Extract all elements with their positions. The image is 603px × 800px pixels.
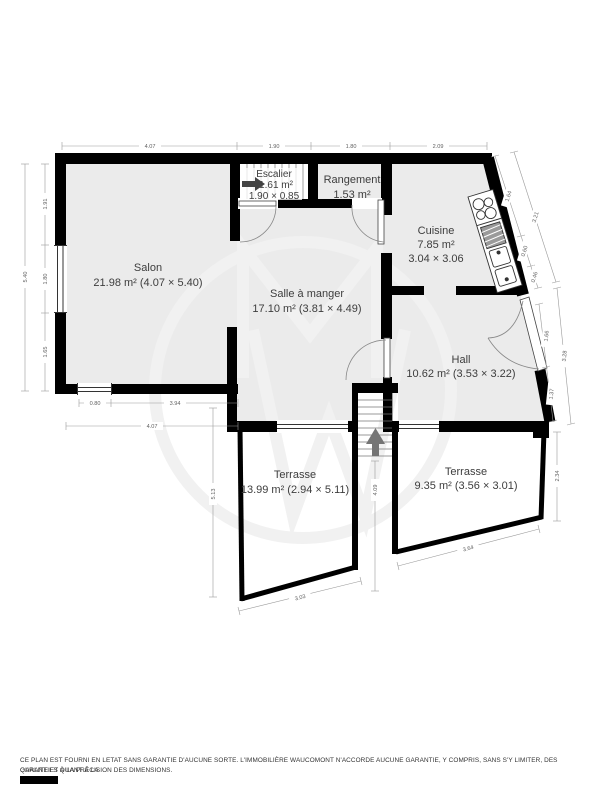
cuisine-label: Cuisine	[418, 225, 455, 237]
dim-top-escalier: 1.90	[269, 144, 280, 150]
cuisine-size: 3.04 × 3.06	[408, 253, 463, 265]
floor-plan-page: 4.07 1.90 1.80 2.09 1.91 1.80 1.65 5.40 …	[0, 0, 603, 800]
salon-left-window	[54, 245, 67, 313]
terrace-left-label: Terrasse	[274, 469, 316, 481]
dim-stairs-len: 4.09	[373, 485, 379, 496]
dim-hall-seg2: 1.37	[549, 388, 556, 399]
dim-top-cuisine: 2.09	[433, 144, 444, 150]
dining-label: Salle à manger	[270, 288, 344, 300]
dim-hall-total: 3.28	[562, 350, 569, 361]
hall-terrace-window	[399, 420, 439, 433]
dim-top-rangement: 1.80	[346, 144, 357, 150]
escalier-label: Escalier	[256, 169, 292, 180]
salon-bottom-window	[77, 383, 112, 395]
dim-left-total: 5.40	[23, 272, 29, 283]
terrace-left-area: 13.99 m² (2.94 × 5.11)	[241, 484, 349, 496]
dim-salon-window: 0.80	[90, 401, 101, 407]
dining-sliding-door	[274, 420, 351, 433]
rangement-label: Rangement	[324, 174, 381, 186]
dim-left-seg1: 1.91	[43, 199, 49, 210]
dim-hall-seg1: 1.66	[544, 330, 551, 341]
dim-top-salon: 4.07	[145, 144, 156, 150]
footer-logo-bar	[20, 776, 58, 784]
dim-terrace-right-h: 2.34	[555, 471, 561, 482]
dim-left-seg3: 1.65	[43, 347, 49, 358]
terrace-right-area: 9.35 m² (3.56 × 3.01)	[414, 480, 517, 492]
hall-label: Hall	[452, 354, 471, 366]
dining-area: 17.10 m² (3.81 × 4.49)	[252, 303, 361, 315]
salon-area: 21.98 m² (4.07 × 5.40)	[93, 277, 202, 289]
floor-plan-svg: 4.07 1.90 1.80 2.09 1.91 1.80 1.65 5.40 …	[0, 0, 603, 800]
dim-terrace-left-h: 5.13	[211, 489, 217, 500]
terrace-right-label: Terrasse	[445, 466, 487, 478]
cuisine-area: 7.85 m²	[417, 239, 455, 251]
dim-salon-rest: 3.94	[170, 401, 181, 407]
escalier-size: 1.90 × 0.85	[249, 191, 300, 202]
salon-label: Salon	[134, 262, 162, 274]
dim-salon-total: 4.07	[147, 424, 158, 430]
dim-left-seg2: 1.80	[43, 274, 49, 285]
disclaimer-line-2: QUALITE ET À LA PRÉCISION DES DIMENSIONS…	[20, 766, 572, 776]
hall-area: 10.62 m² (3.53 × 3.22)	[406, 368, 515, 380]
rangement-area: 1.53 m²	[333, 189, 371, 201]
escalier-area: 1.61 m²	[259, 180, 294, 191]
